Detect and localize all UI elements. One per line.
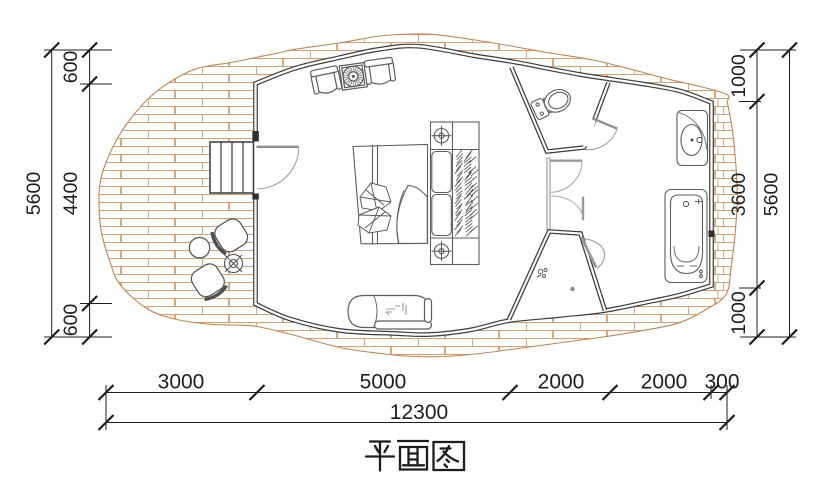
svg-text:600: 600	[60, 304, 82, 337]
svg-text:3000: 3000	[158, 371, 205, 394]
svg-text:1000: 1000	[728, 54, 750, 98]
svg-text:4400: 4400	[60, 172, 82, 216]
svg-text:300: 300	[704, 371, 739, 394]
svg-text:5600: 5600	[23, 172, 45, 216]
svg-text:2000: 2000	[641, 371, 688, 394]
svg-text:2000: 2000	[538, 371, 585, 394]
svg-text:600: 600	[60, 51, 82, 84]
svg-text:3600: 3600	[728, 173, 750, 217]
svg-text:12300: 12300	[390, 401, 448, 424]
svg-text:5000: 5000	[360, 371, 407, 394]
svg-text:5600: 5600	[761, 173, 783, 217]
svg-text:1000: 1000	[728, 291, 750, 335]
